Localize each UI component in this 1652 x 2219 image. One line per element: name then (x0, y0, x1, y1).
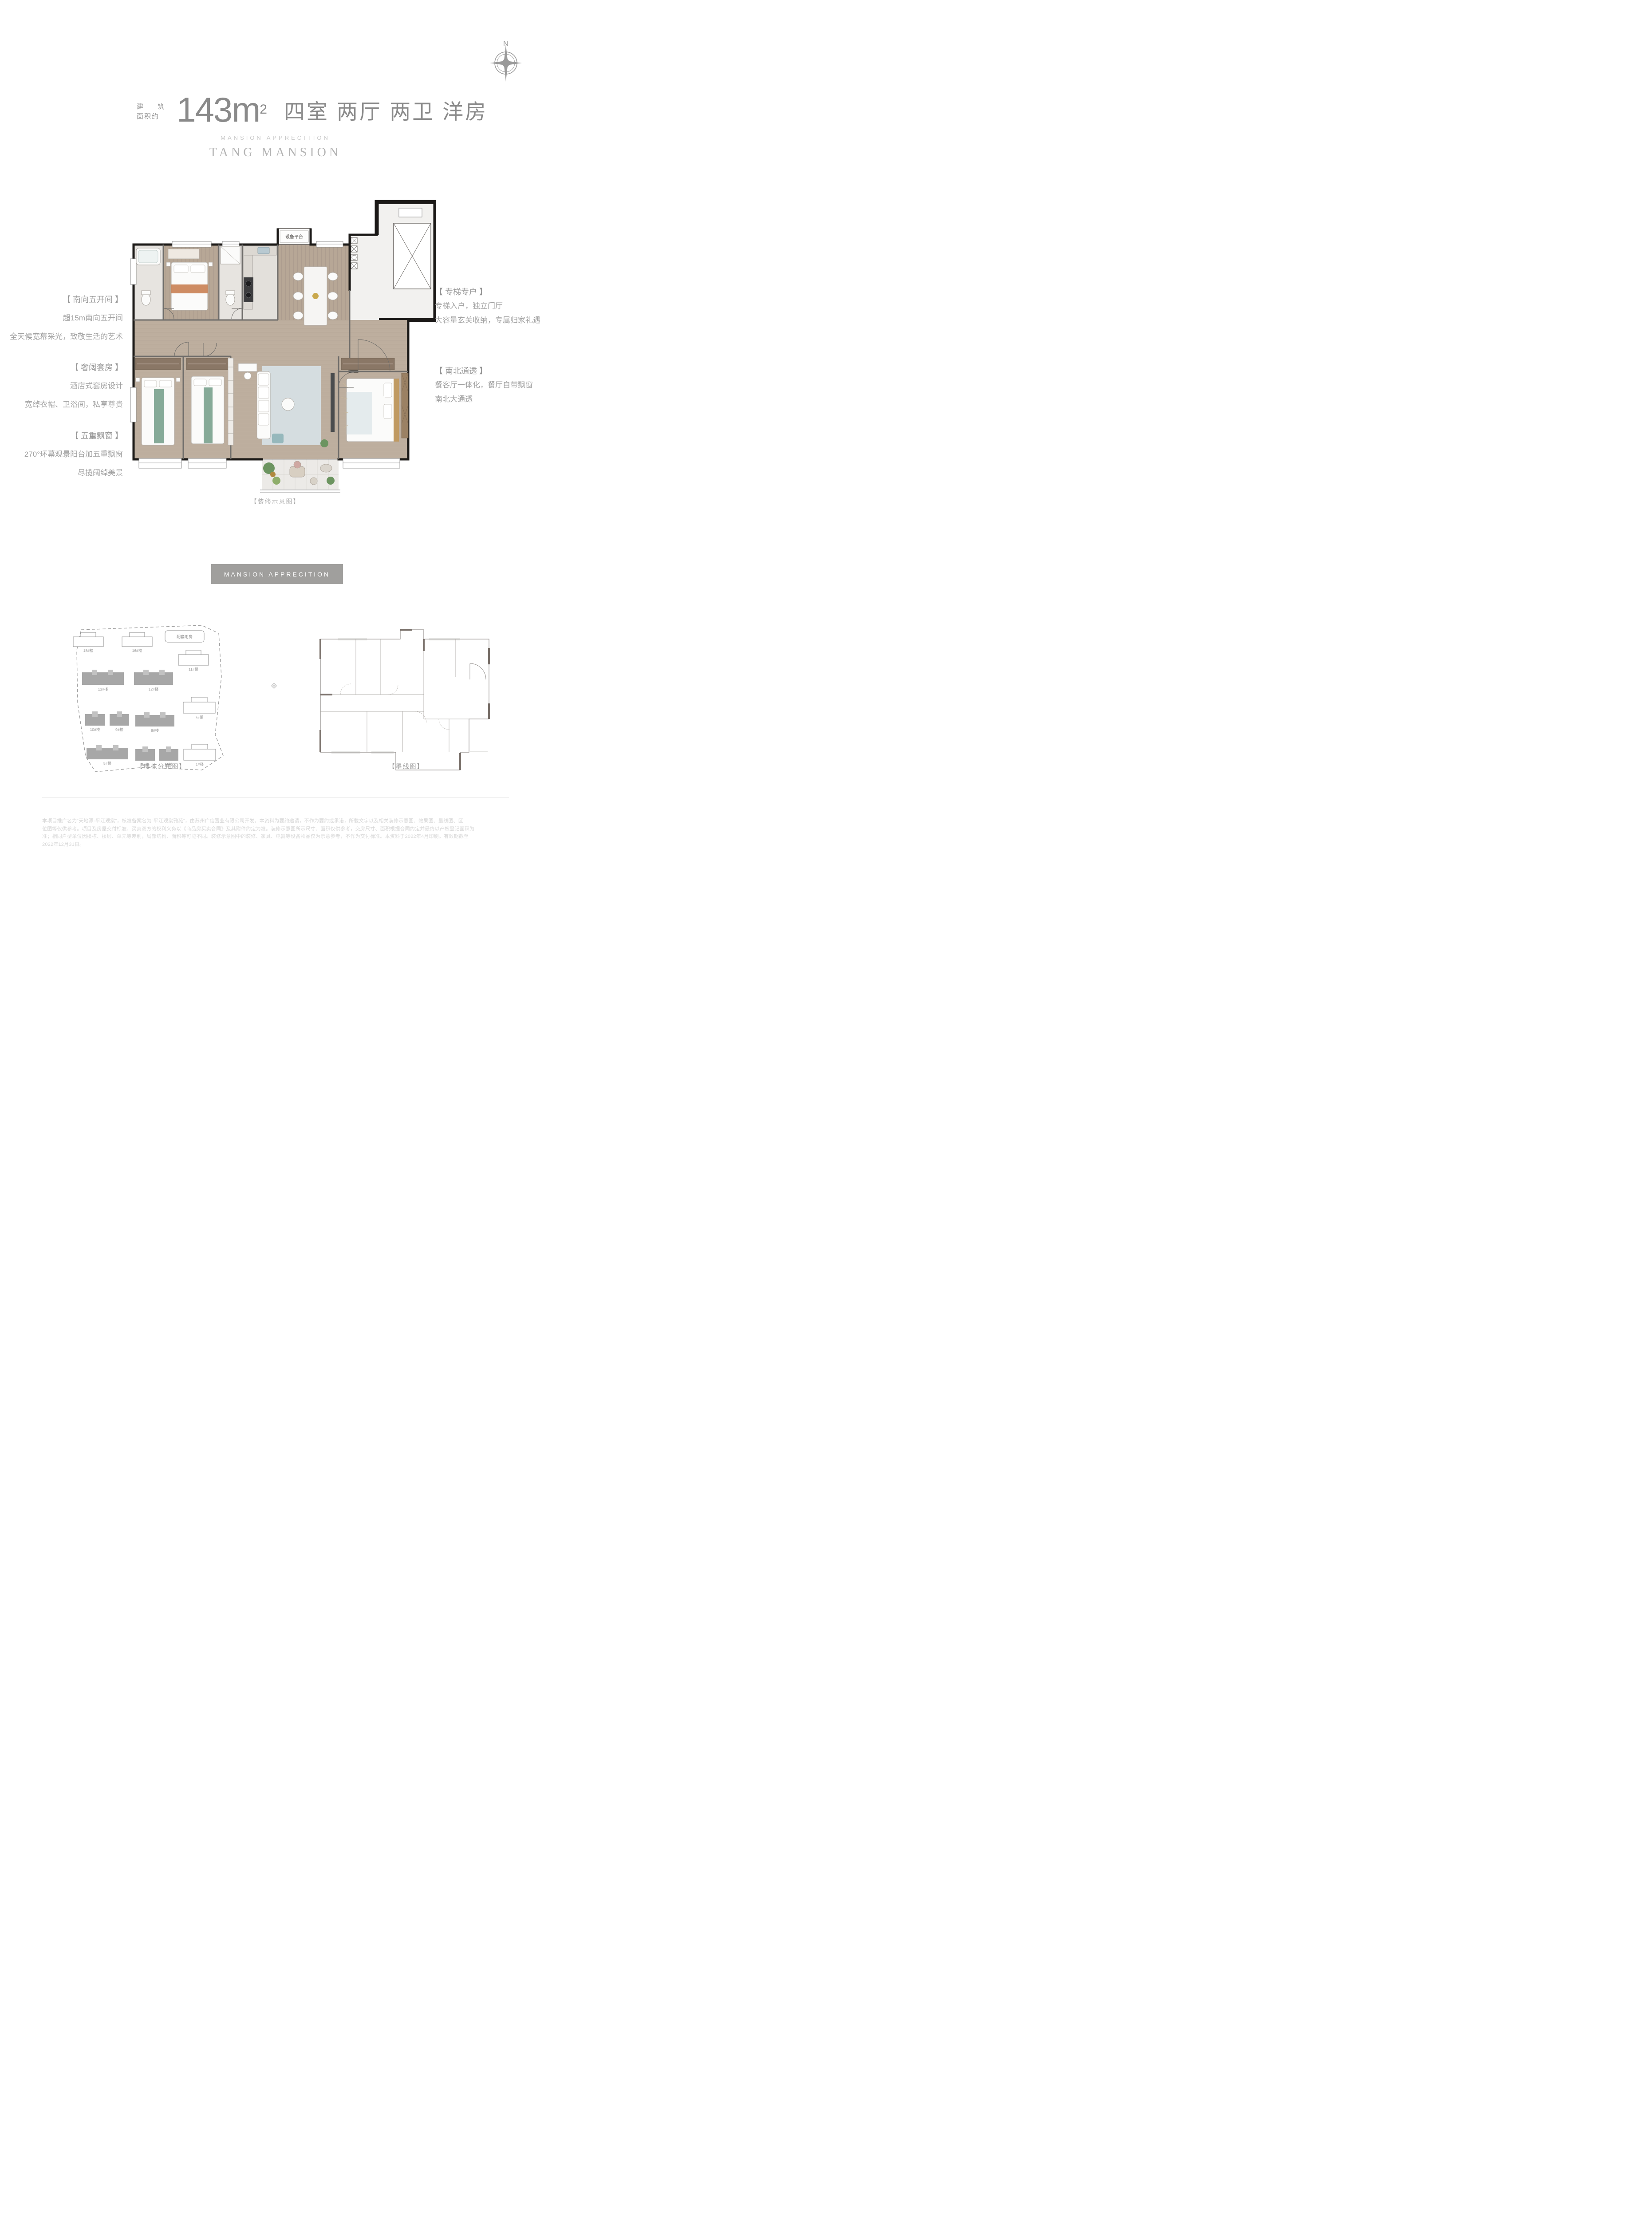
building-label: 11#楼 (189, 667, 199, 671)
balcony-plant-4 (327, 477, 335, 485)
site-plan: 配套用房 18#楼 16#楼 11#楼 13#楼 12#楼 7#楼 10#楼 9… (69, 624, 254, 777)
tv-console (331, 373, 335, 432)
feature-block-ventilation: 【 南北通透 】 餐客厅一体化，餐厅自带飘窗 南北大通透 (435, 364, 533, 407)
coffee-table (282, 398, 294, 411)
feature-line: 大容量玄关收纳，专属归家礼遇 (435, 313, 540, 328)
feature-line: 尽揽阔绰美景 (24, 464, 123, 482)
disclaimer-rule (42, 797, 509, 798)
bed-runner-green-1 (154, 389, 164, 443)
ottoman-teal (272, 434, 284, 443)
toy-shelf (168, 249, 199, 259)
duvet-master (347, 392, 372, 434)
bookshelf (228, 358, 233, 445)
desk (238, 363, 257, 371)
balcony-table (310, 478, 317, 485)
closet-strip (402, 373, 408, 438)
compass-icon: N (489, 37, 523, 83)
toilet (142, 294, 150, 305)
building-label: 8#楼 (151, 728, 159, 733)
floor-plan: 设备平台 (130, 197, 436, 507)
feature-line: 全天候宽幕采光，致敬生活的艺术 (10, 328, 123, 346)
building-label: 18#楼 (83, 648, 94, 653)
ink-line-plan (314, 624, 499, 777)
feature-title: 【 五重飘窗 】 (24, 426, 123, 445)
building-label: 9#楼 (115, 727, 123, 732)
feature-line: 270°环幕观景阳台加五重飘窗 (24, 445, 123, 464)
ink-plan-caption: 【墨线图】 (314, 762, 499, 771)
balcony-plant-3 (270, 472, 276, 477)
area-value: 143m2 (177, 94, 267, 125)
area-prefix-line1: 建 筑 (137, 102, 170, 112)
disclaimer-line: 本项目推广名为“天地源·平江观棠”，核准备案名为“平江观棠雅苑”，由苏州广信置业… (42, 817, 511, 825)
feature-title: 【 南向五开间 】 (10, 290, 123, 309)
bed-runner-green-2 (204, 387, 213, 443)
section-divider-badge: MANSION APPRECITION (211, 564, 343, 584)
layout-title: 四室 两厅 两卫 洋房 (284, 99, 488, 124)
balcony-plant-2 (272, 477, 280, 485)
equipment-platform-label: 设备平台 (285, 234, 303, 240)
brochure-page: 建 筑 面积约 143m2 四室 两厅 两卫 洋房 MANSION APPREC… (0, 0, 551, 912)
building-label: 12#楼 (149, 687, 159, 691)
area-number-text: 143m (177, 90, 260, 129)
feature-line: 专梯入户，独立门厅 (435, 299, 540, 313)
feature-block-elevator: 【 专梯专户 】 专梯入户，独立门厅 大容量玄关收纳，专属归家礼遇 (435, 285, 540, 328)
headboard-master (394, 379, 399, 442)
plant-living (320, 439, 328, 447)
area-superscript: 2 (260, 102, 267, 117)
table-centerpiece (312, 293, 319, 299)
bed-runner-orange (171, 284, 208, 293)
feature-block-south-bays: 【 南向五开间 】 超15m南向五开间 全天候宽幕采光，致敬生活的艺术 (10, 290, 123, 346)
feature-line: 南北大通透 (435, 392, 533, 407)
feature-line: 餐客厅一体化，餐厅自带飘窗 (435, 378, 533, 392)
disclaimer-line: 位图等仅供参考。项目及房屋交付标准、买卖双方的权利义务以《商品房买卖合同》及其附… (42, 825, 511, 833)
brand-title: TANG MANSION (0, 146, 551, 160)
toilet-2 (226, 294, 235, 305)
feature-title: 【 专梯专户 】 (435, 285, 540, 299)
feature-title: 【 南北通透 】 (435, 364, 533, 378)
building-label: 7#楼 (195, 715, 203, 719)
balcony-pouf (320, 464, 332, 472)
disclaimer-text: 本项目推广名为“天地源·平江观棠”，核准备案名为“平江观棠雅苑”，由苏州广信置业… (42, 817, 511, 849)
feature-line: 酒店式套房设计 (25, 377, 123, 395)
site-plan-caption: 【楼栋分布图】 (69, 762, 254, 771)
kitchen-sink (258, 247, 269, 254)
feature-line: 宽绰衣帽、卫浴间，私享尊贵 (25, 395, 123, 414)
page-title: 建 筑 面积约 143m2 四室 两厅 两卫 洋房 (137, 94, 488, 125)
building-label: 13#楼 (98, 687, 108, 691)
floor-plan-caption: 【装修示意图】 (0, 497, 551, 506)
feature-block-bay-windows: 【 五重飘窗 】 270°环幕观景阳台加五重飘窗 尽揽阔绰美景 (24, 426, 123, 482)
disclaimer-line: 2022年12月31日。 (42, 841, 511, 849)
feature-line: 超15m南向五开间 (10, 309, 123, 328)
figure-separator-diamond (270, 682, 278, 690)
shaft-vent (399, 208, 422, 217)
feature-block-suite: 【 奢阔套房 】 酒店式套房设计 宽绰衣帽、卫浴间，私享尊贵 (25, 358, 123, 414)
figure-separator-line (274, 632, 274, 682)
building-label: 10#楼 (90, 727, 100, 732)
ink-outline (320, 630, 489, 770)
series-subtitle: MANSION APPRECITION (0, 134, 551, 141)
area-prefix-line2: 面积约 (137, 112, 170, 122)
disclaimer-line: 准；相同户型单位因楼栋、楼层、单元等差别，局部结构、面积等可能不同。装修示意图中… (42, 833, 511, 841)
area-prefix: 建 筑 面积约 (137, 102, 170, 122)
figure-separator-line (274, 690, 274, 752)
desk-chair (244, 372, 251, 379)
feature-title: 【 奢阔套房 】 (25, 358, 123, 377)
amenity-label: 配套用房 (177, 634, 193, 639)
building-label: 16#楼 (132, 648, 142, 653)
